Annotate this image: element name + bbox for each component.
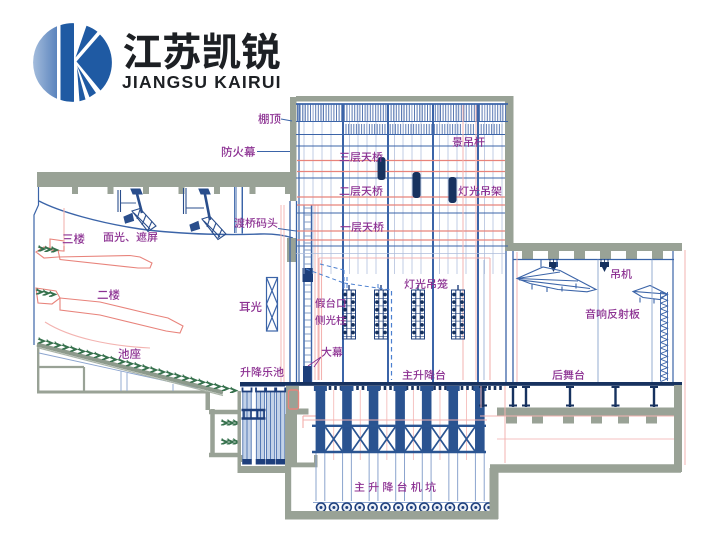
svg-text:JIANGSU KAIRUI: JIANGSU KAIRUI [122, 72, 282, 92]
